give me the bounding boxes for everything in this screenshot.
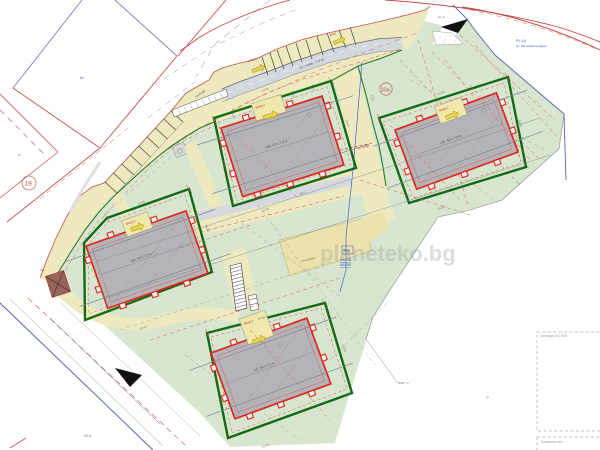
svg-text:Ж: Ж <box>18 153 21 157</box>
svg-text:6o: 6o <box>80 76 84 80</box>
svg-text:planeteko.bg: planeteko.bg <box>320 241 456 266</box>
svg-text:ТП: ТП <box>40 268 44 272</box>
svg-text:60 м: 60 м <box>84 434 92 438</box>
svg-text:РУ 4-6: РУ 4-6 <box>516 39 526 43</box>
svg-text:Графична част: Графична част <box>541 440 564 444</box>
svg-text:вх. А: вх. А <box>438 15 445 19</box>
svg-text:10а: 10а <box>381 88 391 94</box>
svg-text:ул. Люлякова градина: ул. Люлякова градина <box>516 44 547 48</box>
svg-text:19: 19 <box>25 181 33 188</box>
svg-text:Ситуация М 1:500: Ситуация М 1:500 <box>540 334 567 338</box>
